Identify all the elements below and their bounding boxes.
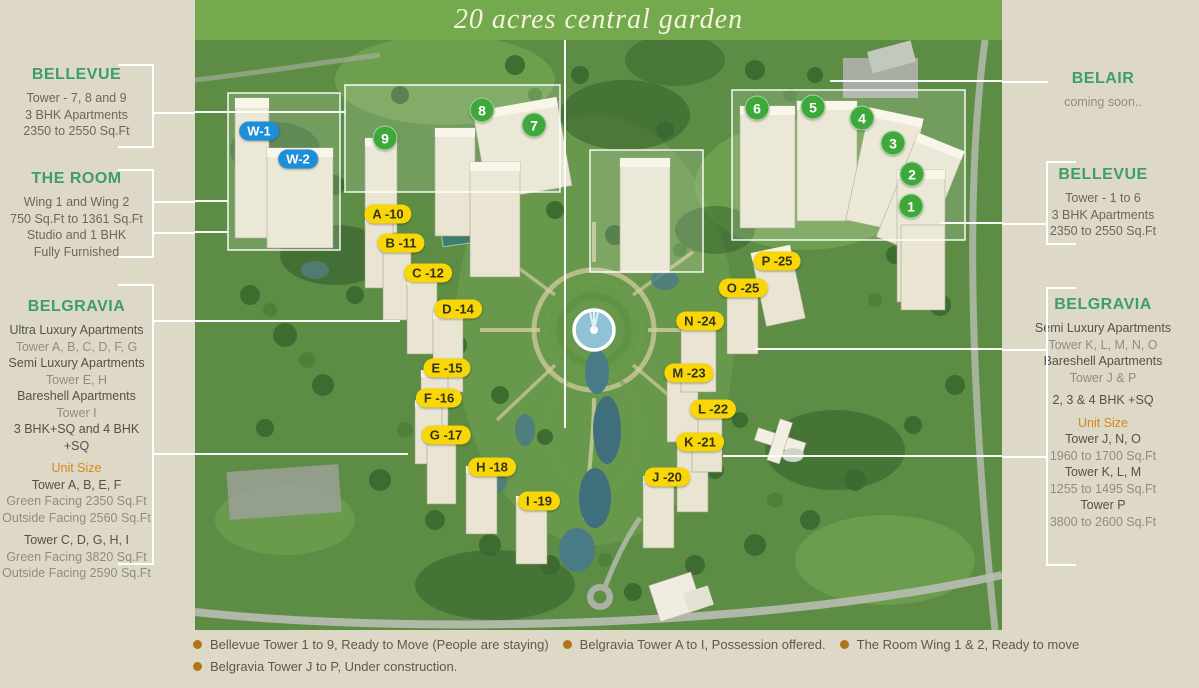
tower-label-J: J -20 (644, 468, 690, 487)
tower-label-P: P -25 (754, 252, 801, 271)
tower-label-O: O -25 (719, 279, 768, 298)
tower-label-H: H -18 (468, 458, 516, 477)
banner: 20 acres central garden (195, 0, 1002, 40)
tower-label-F: F -16 (416, 389, 462, 408)
room-wing-label-w-1: W-1 (239, 122, 279, 141)
bellevue-marker-6: 6 (745, 96, 770, 121)
tower-label-B: B -11 (377, 234, 424, 253)
bellevue-marker-5: 5 (801, 95, 826, 120)
tower-label-C: C -12 (404, 264, 452, 283)
tower-label-N: N -24 (676, 312, 724, 331)
bellevue-marker-2: 2 (900, 162, 925, 187)
tower-label-G: G -17 (422, 426, 471, 445)
tower-label-D: D -14 (434, 300, 482, 319)
bellevue-marker-8: 8 (470, 98, 495, 123)
tower-label-M: M -23 (664, 364, 713, 383)
site-plan-page: 20 acres central garden A -10B -11C -12D… (0, 0, 1199, 688)
tower-label-L: L -22 (690, 400, 736, 419)
bellevue-marker-1: 1 (899, 194, 924, 219)
map-labels-layer: A -10B -11C -12D -14E -15F -16G -17H -18… (0, 0, 1199, 688)
tower-label-K: K -21 (676, 433, 724, 452)
tower-label-A: A -10 (364, 205, 411, 224)
tower-label-E: E -15 (423, 359, 470, 378)
tower-label-I: I -19 (518, 492, 560, 511)
banner-title: 20 acres central garden (454, 4, 743, 36)
bellevue-marker-7: 7 (522, 113, 547, 138)
room-wing-label-w-2: W-2 (278, 150, 318, 169)
bellevue-marker-3: 3 (881, 131, 906, 156)
bellevue-marker-4: 4 (850, 106, 875, 131)
bellevue-marker-9: 9 (373, 126, 398, 151)
